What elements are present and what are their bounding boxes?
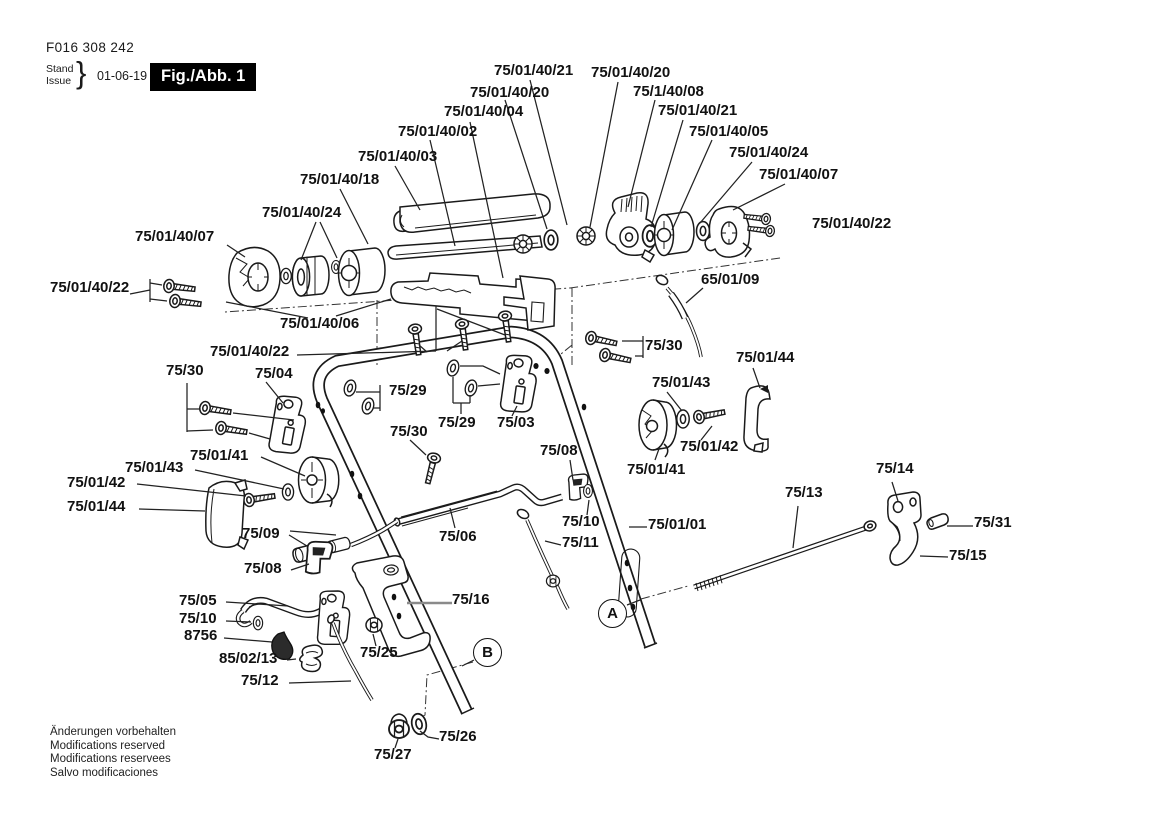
part-label: 75/27 <box>374 746 412 763</box>
part-label: 75/01/43 <box>125 459 183 476</box>
part-label: 75/10 <box>179 610 217 627</box>
part-label: 75/08 <box>244 560 282 577</box>
part-label: 75/29 <box>389 382 427 399</box>
part-label: 75/09 <box>242 525 280 542</box>
part-label: 75/01/44 <box>67 498 125 515</box>
part-label: 75/01/40/03 <box>358 148 437 165</box>
part-label: 75/01/41 <box>190 447 248 464</box>
part-label: 75/01/40/18 <box>300 171 379 188</box>
part-label: 75/16 <box>452 591 490 608</box>
part-label: 75/01/40/02 <box>398 123 477 140</box>
exploded-drawing <box>0 0 1168 825</box>
part-label: 75/01/40/21 <box>494 62 573 79</box>
view-marker-a: A <box>598 599 627 628</box>
roller-parts-chain <box>514 193 775 262</box>
part-label: 75/03 <box>497 414 535 431</box>
part-label: 75/01/40/22 <box>812 215 891 232</box>
view-marker-b: B <box>473 638 502 667</box>
part-label: 75/08 <box>540 442 578 459</box>
footer-notice: Änderungen vorbehaltenModifications rese… <box>50 726 176 780</box>
part-label: 75/01/40/05 <box>689 123 768 140</box>
part-label: 75/14 <box>876 460 914 477</box>
part-label: 75/01/40/06 <box>280 315 359 332</box>
part-label: 75/1/40/08 <box>633 83 704 100</box>
part-label: 75/30 <box>390 423 428 440</box>
part-label: 75/01/40/04 <box>444 103 523 120</box>
part-label: 75/01/43 <box>652 374 710 391</box>
part-label: 75/05 <box>179 592 217 609</box>
part-label: 75/31 <box>974 514 1012 531</box>
part-label: 75/13 <box>785 484 823 501</box>
part-label: 75/01/40/24 <box>729 144 808 161</box>
footer-line: Modifications reserved <box>50 740 176 754</box>
part-label: 75/01/44 <box>736 349 794 366</box>
part-label: 75/01/01 <box>648 516 706 533</box>
part-label: 75/06 <box>439 528 477 545</box>
rod-and-lever-group <box>694 492 948 591</box>
part-label: 75/01/40/21 <box>658 102 737 119</box>
footer-line: Änderungen vorbehalten <box>50 726 176 740</box>
part-label: 75/12 <box>241 672 279 689</box>
part-label: 75/01/40/24 <box>262 204 341 221</box>
part-label: 75/01/40/20 <box>591 64 670 81</box>
part-label: 75/01/42 <box>67 474 125 491</box>
leader-lines <box>130 80 973 748</box>
part-label: 75/10 <box>562 513 600 530</box>
part-label: 8756 <box>184 627 217 644</box>
part-label: 75/26 <box>439 728 477 745</box>
part-label: 75/01/40/22 <box>50 279 129 296</box>
left-roller-assembly <box>163 247 385 310</box>
part-label: 75/29 <box>438 414 476 431</box>
part-label: 75/01/40/20 <box>470 84 549 101</box>
part-label: 75/11 <box>562 534 599 551</box>
part-label: 65/01/09 <box>701 271 759 288</box>
part-label: 75/04 <box>255 365 293 382</box>
footer-line: Modifications reservees <box>50 753 176 767</box>
parts-diagram-page: F016 308 242 Stand Issue } 01-06-19 Fig.… <box>0 0 1168 825</box>
part-label: 75/01/40/22 <box>210 343 289 360</box>
part-label: 75/01/41 <box>627 461 685 478</box>
footer-line: Salvo modificaciones <box>50 767 176 781</box>
part-label: 75/30 <box>166 362 204 379</box>
part-label: 75/01/40/07 <box>759 166 838 183</box>
part-label: 75/30 <box>645 337 683 354</box>
part-label: 75/25 <box>360 644 398 661</box>
part-label: 75/01/42 <box>680 438 738 455</box>
part-label: 85/02/13 <box>219 650 277 667</box>
part-label: 75/01/40/07 <box>135 228 214 245</box>
part-label: 75/15 <box>949 547 987 564</box>
